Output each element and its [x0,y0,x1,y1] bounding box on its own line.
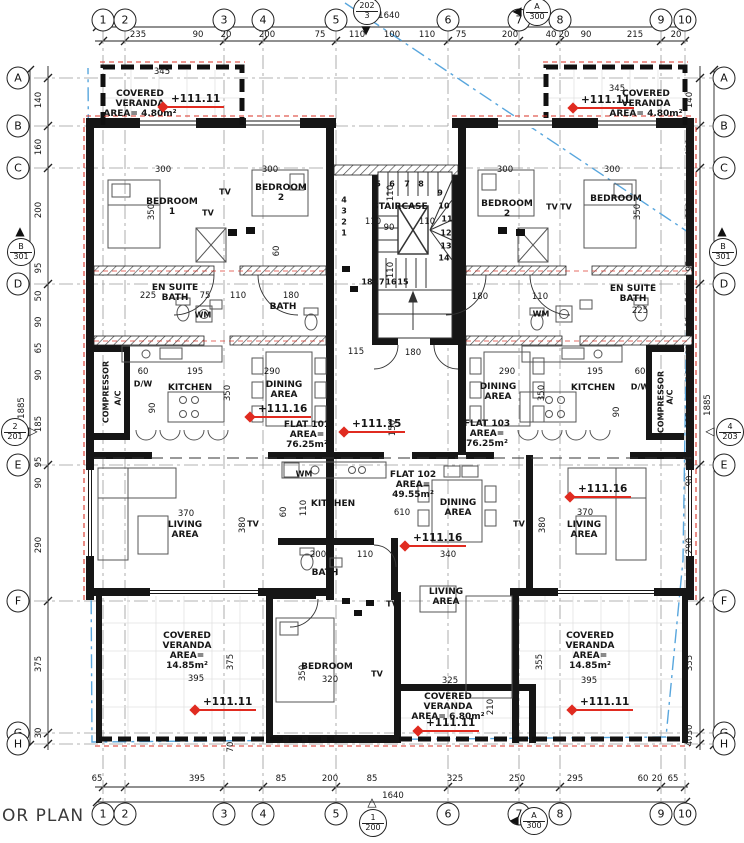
section-marker-circle: 2201 [1,418,29,446]
dim-label: 195 [587,367,603,377]
dim-label: 200 [322,774,338,784]
dim-label: 375 [226,654,236,670]
grid-bubble-row-F: F [713,590,736,613]
grid-bubble-col-3: 3 [213,9,236,32]
section-marker-arrow-icon: ▷ [28,424,37,438]
stair-step-number: 13 [440,242,451,251]
section-marker-circle: 4203 [716,418,744,446]
dim-label: 95 [685,317,695,328]
elevation-value: +111.16 [578,483,627,495]
dim-label: 350 [537,385,547,401]
label-ac: A/C [114,391,123,406]
dim-label: 345 [154,67,170,77]
stair-step-number: 7 [404,180,410,189]
stair-step-number: 18 [361,278,372,287]
dim-label: 200 [685,202,695,218]
dim-label: 90 [34,478,44,489]
stair-step-number: 4 [341,196,347,205]
dim-label: 320 [322,675,338,685]
stair-step-number: 5 [375,180,381,189]
room-label-en-suite-bath-left: EN SUITEBATH [152,283,198,303]
grid-bubble-col-3: 3 [213,803,236,826]
dim-label: 60 [138,367,149,377]
dim-label: 235 [130,30,146,40]
dim-label: 110 [419,30,435,40]
dim-label: 90 [581,30,592,40]
stair-step-number: 11 [441,215,452,224]
dim-label: 300 [262,165,278,175]
section-marker-circle: B301 [7,238,35,266]
room-label-bedroom-bottom: BEDROOM [301,662,353,672]
stair-step-number: 9 [437,189,443,198]
stair-step-number: 1 [341,229,347,238]
dim-label: 65 [668,774,679,784]
dim-label: 115 [348,347,364,357]
dim-label: 295 [567,774,583,784]
dim-label: 350 [223,385,233,401]
grid-bubble-row-H: H [713,733,736,756]
dim-label: 300 [497,165,513,175]
room-label-kitchen-right: KITCHEN [571,383,615,393]
section-marker-arrow-icon: ▲ [717,224,726,238]
section-marker-arrow-icon: ▼ [361,23,370,37]
elevation-value: +111.11 [171,93,220,105]
room-label-bedroom-right: BEDROOM [590,194,642,204]
label-tv: TV [371,670,383,679]
dim-label: 340 [440,550,456,560]
dim-label: 60 [685,345,695,356]
room-label-staircase: STAIRCASE [372,202,427,212]
dim-label: 50 [685,292,695,303]
dim-label: 395 [581,676,597,686]
dim-label: 110 [357,550,373,560]
dim-label: 380 [538,517,548,533]
label-wm: WM [195,311,212,320]
room-label-living-area-center: LIVINGAREA [429,587,463,607]
dim-label: 370 [577,508,593,518]
grid-bubble-row-H: H [7,733,30,756]
dim-label: 225 [632,306,648,316]
room-label-bath-center: BATH [312,568,339,578]
dim-label: 160 [685,139,695,155]
grid-bubble-row-E: E [713,454,736,477]
dim-label: 290 [685,538,695,554]
elevation-leader-line [421,730,479,732]
dim-label: 290 [264,367,280,377]
dim-label: 70 [226,742,236,753]
dim-label: 90 [384,223,395,233]
grid-bubble-col-2: 2 [114,803,137,826]
dim-label: 110 [419,217,435,227]
room-label-bath-left: BATH [270,302,297,312]
elevation-leader-line [253,416,311,418]
label-dw: D/W [134,380,152,389]
elevation-value: +111.11 [203,696,252,708]
grid-bubble-row-E: E [7,454,30,477]
grid-bubble-col-8: 8 [549,803,572,826]
elevation-leader-line [408,545,466,547]
dim-label: 395 [188,674,204,684]
dim-label: 200 [34,202,44,218]
dim-label: 210 [486,699,496,715]
elevation-value: +111.11 [581,94,630,106]
dim-label: 95 [34,263,44,274]
dim-label: 60 [638,774,649,784]
annotation-layer: 2359020200751101001107520040209021520653… [0,0,744,843]
dim-label: 85 [276,774,287,784]
room-label-dining-area-right: DININGAREA [480,382,517,402]
grid-bubble-col-6: 6 [437,803,460,826]
dim-label: 110 [386,262,396,278]
dim-label: 90 [685,370,695,381]
elevation-leader-line [575,709,633,711]
label-tv: TV [513,520,525,529]
dim-label: 60 [635,367,646,377]
grid-bubble-row-C: C [7,157,30,180]
label-dw: D/W [631,383,649,392]
room-label-kitchen-center: KITCHEN [311,499,355,509]
room-label-bedroom-2-left: BEDROOM2 [255,183,307,203]
dim-label: 350 [633,204,643,220]
stair-step-number: 10 [438,202,449,211]
dim-label: 325 [447,774,463,784]
dim-label: 20 [559,30,570,40]
elevation-leader-line [166,106,224,108]
dim-label: 300 [155,165,171,175]
label-compressor: COMPRESSOR [102,361,111,423]
dim-label: 180 [472,292,488,302]
dim-label: 95 [34,457,44,468]
grid-bubble-row-C: C [713,157,736,180]
room-label-dining-area-center: DININGAREA [440,498,477,518]
room-label-kitchen-left: KITCHEN [168,383,212,393]
elevation-value: +111.15 [352,418,401,430]
overall-dim-bottom: 1640 [382,791,404,801]
room-label-living-area-right: LIVINGAREA [567,520,601,540]
dim-label: 60 [272,246,282,257]
overall-dim-right: 1885 [703,394,713,416]
grid-bubble-row-B: B [7,115,30,138]
dim-label: 100 [384,30,400,40]
room-label-bedroom-1-left: BEDROOM1 [146,197,198,217]
grid-bubble-row-F: F [7,590,30,613]
dim-label: 185 [685,412,695,428]
grid-bubble-col-9: 9 [650,9,673,32]
dim-label: 85 [367,774,378,784]
dim-label: 75 [315,30,326,40]
elevation-value: +111.11 [426,717,475,729]
label-tv: TV [386,600,398,609]
room-label-covered-veranda-bottom-left: COVEREDVERANDAAREA=14.85m² [163,631,212,671]
grid-bubble-col-10: 10 [674,803,697,826]
dim-label: 40 [685,736,695,747]
label-tv: TV [202,209,214,218]
room-label-en-suite-bath-right: EN SUITEBATH [610,284,656,304]
dim-label: 140 [685,92,695,108]
dim-label: 90 [612,407,622,418]
dim-label: 355 [685,655,695,671]
elevation-leader-line [576,107,634,109]
label-tv: TV [247,520,259,529]
dim-label: 90 [34,317,44,328]
grid-bubble-col-4: 4 [252,9,275,32]
label-tv: TV [560,203,572,212]
room-label-flat-102: FLAT 102AREA=49.55m² [390,470,436,500]
section-marker-arrow-icon: △ [367,795,376,809]
dim-label: 110 [532,292,548,302]
elevation-leader-line [347,431,405,433]
elevation-value: +111.16 [258,403,307,415]
dim-label: 40 [546,30,557,40]
dim-label: 30 [685,725,695,736]
room-label-living-area-left: LIVINGAREA [168,520,202,540]
dim-label: 20 [221,30,232,40]
elevation-value: +111.11 [580,696,629,708]
dim-label: 140 [34,92,44,108]
grid-bubble-row-A: A [713,67,736,90]
label-wm: WM [296,470,313,479]
dim-label: 250 [509,774,525,784]
dim-label: 375 [34,656,44,672]
dim-label: 95 [685,456,695,467]
dim-label: 90 [34,370,44,381]
dim-label: 30 [34,728,44,739]
label-wm: WM [533,310,550,319]
grid-bubble-col-4: 4 [252,803,275,826]
dim-label: 110 [299,500,309,516]
floor-plan-canvas: 2359020200751101001107520040209021520653… [0,0,744,843]
grid-bubble-col-1: 1 [92,803,115,826]
section-marker-arrow-icon: ◀ [509,813,518,827]
elevation-value: +111.16 [413,532,462,544]
stair-step-number: 2 [341,218,347,227]
dim-label: 90 [148,403,158,414]
label-ac: A/C [666,390,675,405]
grid-bubble-col-5: 5 [325,803,348,826]
grid-bubble-col-6: 6 [437,9,460,32]
dim-label: 200 [310,550,326,560]
overall-dim-left: 1885 [17,397,27,419]
elevation-leader-line [198,709,256,711]
dim-label: 195 [187,367,203,377]
grid-bubble-col-2: 2 [114,9,137,32]
dim-label: 90 [685,476,695,487]
dim-label: 60 [279,507,289,518]
elevation-leader-line [573,496,631,498]
stair-step-number: 16 [385,278,396,287]
dim-label: 610 [394,508,410,518]
dim-label: 20 [671,30,682,40]
dim-label: 75 [456,30,467,40]
section-marker-arrow-icon: ◀ [512,4,521,18]
section-marker-circle: 2023 [353,0,381,25]
dim-label: 370 [178,509,194,519]
dim-label: 325 [442,676,458,686]
room-label-flat-101: FLAT 101AREA=76.25m² [284,420,330,450]
dim-label: 290 [34,537,44,553]
room-label-flat-103: FLAT 103AREA=76.25m² [464,419,510,449]
section-marker-circle: 1200 [359,809,387,837]
dim-label: 20 [652,774,663,784]
dim-label: 180 [405,348,421,358]
grid-bubble-col-1: 1 [92,9,115,32]
section-marker-circle: A300 [523,0,551,26]
grid-bubble-col-5: 5 [325,9,348,32]
section-marker-circle: B301 [709,238,737,266]
stair-step-number: 6 [389,180,395,189]
dim-label: 50 [34,291,44,302]
dim-label: 90 [193,30,204,40]
room-label-covered-veranda-bottom-right: COVEREDVERANDAAREA=14.85m² [566,631,615,671]
dim-label: 290 [499,367,515,377]
dim-label: 75 [200,291,211,301]
dim-label: 215 [627,30,643,40]
stair-step-number: 17 [373,278,384,287]
grid-bubble-row-D: D [7,273,30,296]
section-marker-arrow-icon: ◁ [705,424,714,438]
dim-label: 110 [230,291,246,301]
grid-bubble-row-A: A [7,67,30,90]
dim-label: 395 [189,774,205,784]
dim-label: 355 [535,654,545,670]
grid-bubble-col-10: 10 [674,9,697,32]
dim-label: 160 [34,139,44,155]
section-marker-circle: A300 [520,807,548,835]
dim-label: 65 [34,343,44,354]
label-compressor: COMPRESSOR [657,371,666,433]
dim-label: 200 [502,30,518,40]
room-label-bedroom-2-right: BEDROOM2 [481,199,533,219]
dim-label: 300 [604,165,620,175]
grid-bubble-row-B: B [713,115,736,138]
label-tv: TV [219,188,231,197]
plan-title: OR PLAN [2,806,84,826]
label-tv: TV [546,203,558,212]
grid-bubble-row-D: D [713,273,736,296]
dim-label: 65 [92,774,103,784]
overall-dim-top: 1640 [378,11,400,21]
dim-label: 180 [283,291,299,301]
dim-label: 110 [365,217,381,227]
section-marker-arrow-icon: ▲ [15,224,24,238]
dim-label: 200 [259,30,275,40]
grid-bubble-col-8: 8 [549,9,572,32]
stair-step-number: 12 [440,229,451,238]
stair-step-number: 3 [341,207,347,216]
dim-label: 95 [685,261,695,272]
room-label-dining-area-left: DININGAREA [266,380,303,400]
stair-step-number: 15 [397,278,408,287]
stair-step-number: 8 [418,180,424,189]
grid-bubble-col-9: 9 [650,803,673,826]
stair-step-number: 14 [438,254,449,263]
